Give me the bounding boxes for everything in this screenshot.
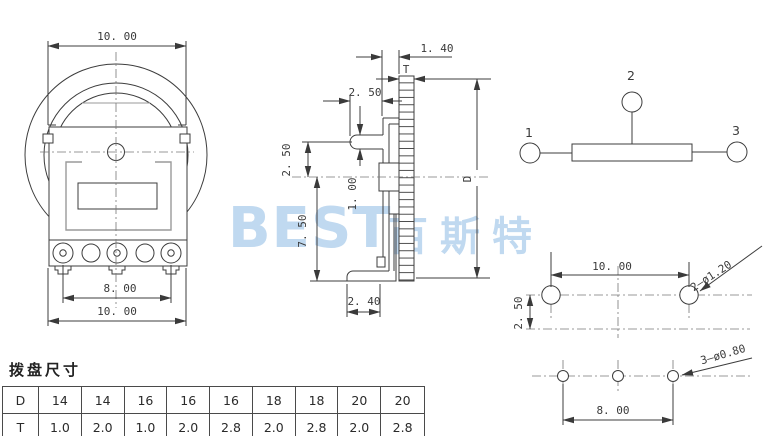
size-table-t-label: T: [3, 414, 39, 436]
mount-hole-note-label: 2—ø1.20: [688, 258, 734, 294]
dim-row-offset-label: 2. 50: [512, 296, 525, 329]
terminal-hole-note: 3—ø0.80: [682, 342, 752, 375]
dim-foot-length-label: 2. 40: [347, 295, 380, 308]
dim-rim-thickness: T: [376, 63, 491, 79]
size-table-d-value: 18: [253, 387, 296, 414]
dim-foot-length: 2. 40: [347, 284, 381, 317]
dim-pin-length: 2. 50: [323, 86, 402, 136]
terminal-node-1: [520, 143, 540, 163]
terminal-node-3: [727, 142, 747, 162]
terminal-hole-middle: [613, 371, 624, 382]
terminal-hole-note-label: 3—ø0.80: [699, 342, 747, 367]
dim-axis-to-foot-label: 7. 50: [296, 214, 309, 247]
rivet-left: [82, 244, 100, 262]
size-table-d-value: 16: [210, 387, 253, 414]
dim-body-width: 10. 00: [48, 268, 186, 326]
size-table-t-value: 2.0: [253, 414, 296, 436]
terminal-hole-right: [668, 371, 679, 382]
dim-mount-hole-span-label: 10. 00: [592, 260, 632, 273]
mount-hole-left: [542, 286, 560, 304]
terminal-pin: [350, 135, 383, 149]
size-table-d-label: D: [3, 387, 39, 414]
size-table-d-value: 14: [82, 387, 125, 414]
size-table-d-value: 18: [296, 387, 339, 414]
dim-pin-axis-offset-label: 2. 50: [280, 143, 293, 176]
size-table-d-value: 16: [125, 387, 168, 414]
dim-terminal-span-label: 8. 00: [103, 282, 136, 295]
size-table-t-value: 2.8: [381, 414, 424, 436]
size-table-title: 拨盘尺寸: [9, 359, 81, 380]
terminal-node-2: [622, 92, 642, 112]
terminal-2-label: 2: [627, 68, 635, 83]
size-table-d-value: 16: [167, 387, 210, 414]
terminal-1-label: 1: [525, 125, 533, 140]
size-table-d-value: 20: [381, 387, 424, 414]
terminal-left: [53, 243, 73, 263]
dim-face-to-rim-label: 1. 40: [420, 42, 453, 55]
side-view: 1. 40 T 2. 50 2. 50 1. 00: [280, 42, 491, 317]
dim-dial-width-label: 10. 00: [97, 30, 137, 43]
side-nub: [377, 257, 385, 267]
size-table-t-value: 2.8: [210, 414, 253, 436]
dim-axis-to-foot: 7. 50: [296, 177, 347, 281]
body-ear-left: [43, 134, 53, 143]
size-table-t-value: 1.0: [125, 414, 168, 436]
dim-row-offset: 2. 50: [512, 295, 530, 330]
drawing-sheet: BEST 百斯特: [0, 0, 775, 436]
body-window: [78, 183, 157, 209]
pcb-footprint: 10. 00 2. 50 2—ø1.20 3—ø0.80 8. 00: [512, 246, 762, 425]
dim-pin-diameter-label: 1. 00: [346, 177, 359, 210]
dim-rim-diameter: D: [416, 79, 490, 278]
size-table-t-value: 2.0: [82, 414, 125, 436]
dim-pin-axis-offset: 2. 50: [280, 142, 352, 177]
front-view: 10. 00 8. 00 10. 00: [25, 30, 207, 326]
knurled-rim: [399, 76, 414, 281]
size-table-d-value: 14: [39, 387, 82, 414]
dim-mount-hole-span: 10. 00: [551, 252, 689, 287]
technical-drawing: 10. 00 8. 00 10. 00: [0, 0, 775, 436]
dim-terminal-hole-span-label: 8. 00: [596, 404, 629, 417]
schematic-symbol: 1 2 3: [520, 68, 747, 163]
mount-hole-note: 2—ø1.20: [688, 246, 762, 294]
size-table-d-value: 20: [338, 387, 381, 414]
tab-middle: [109, 266, 125, 274]
resistor-element: [572, 144, 692, 161]
size-table: D 14 14 16 16 16 18 18 20 20 T 1.0 2.0 1…: [2, 386, 425, 436]
size-table-t-value: 1.0: [39, 414, 82, 436]
rim-thickness-label: T: [403, 63, 410, 76]
size-table-t-value: 2.8: [296, 414, 339, 436]
terminal-middle: [107, 243, 127, 263]
rivet-right: [136, 244, 154, 262]
terminal-3-label: 3: [732, 123, 740, 138]
dim-pin-diameter: 1. 00: [346, 106, 360, 211]
dim-body-width-label: 10. 00: [97, 305, 137, 318]
rim-diameter-label: D: [461, 176, 474, 183]
terminal-right: [161, 243, 181, 263]
dim-pin-length-label: 2. 50: [348, 86, 381, 99]
size-table-t-value: 2.0: [167, 414, 210, 436]
dim-terminal-span: 8. 00: [63, 265, 171, 303]
body-ear-right: [180, 134, 190, 143]
terminal-hole-left: [558, 371, 569, 382]
size-table-t-value: 2.0: [338, 414, 381, 436]
